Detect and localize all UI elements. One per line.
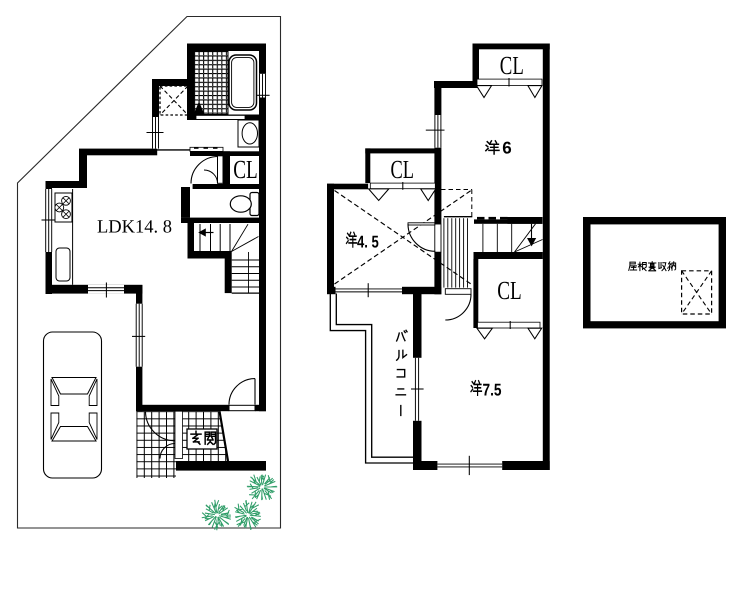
svg-text:6: 6 bbox=[502, 139, 511, 158]
svg-text:CL: CL bbox=[500, 51, 524, 80]
svg-text:4. 5: 4. 5 bbox=[357, 232, 379, 251]
svg-text:CL: CL bbox=[233, 155, 258, 184]
svg-text:LDK14. 8: LDK14. 8 bbox=[97, 217, 172, 238]
svg-text:7.5: 7.5 bbox=[483, 381, 502, 400]
svg-text:CL: CL bbox=[391, 155, 415, 184]
svg-text:CL: CL bbox=[497, 276, 522, 305]
